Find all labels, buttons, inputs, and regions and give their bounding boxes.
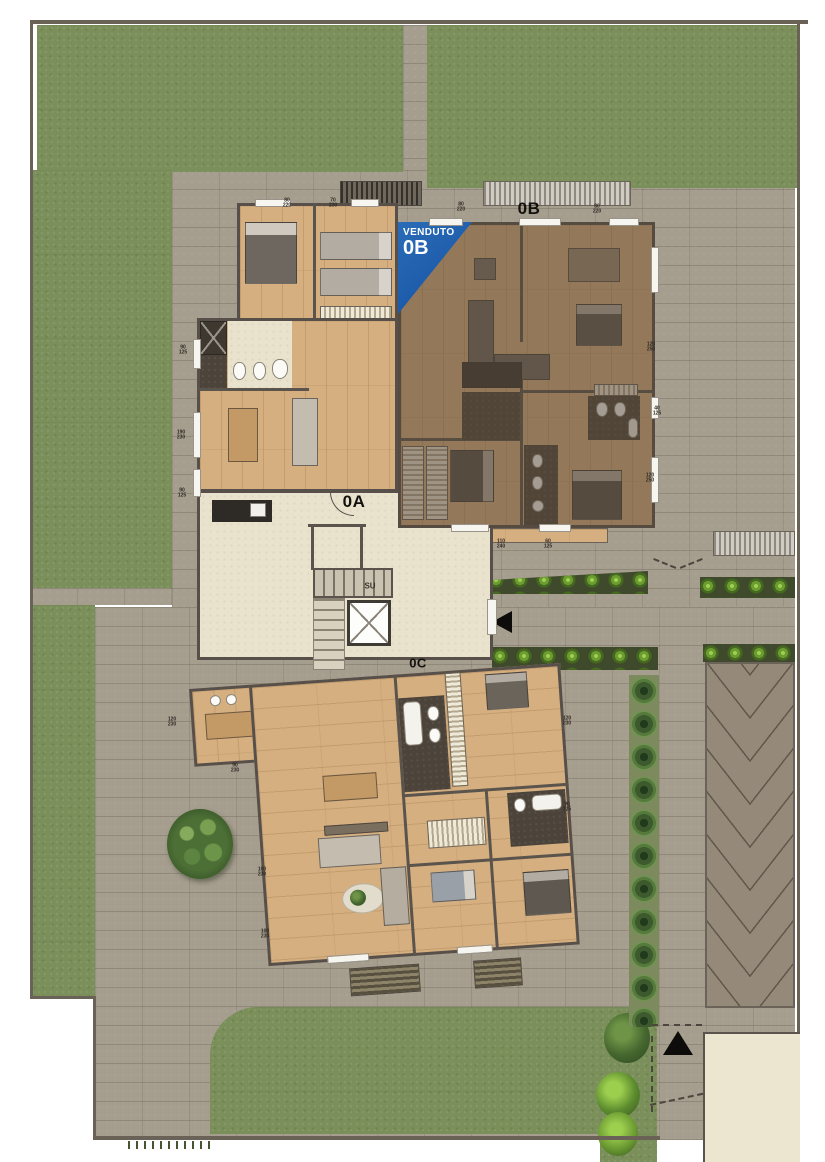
lobby-entry-door [488, 600, 496, 634]
boundary-dash-horizontal [652, 1024, 702, 1026]
boundary-wall-jog [30, 996, 95, 999]
dimension-label: 40125 [653, 406, 661, 415]
dimension-label: 100230 [261, 929, 269, 938]
dining-table [228, 408, 258, 462]
bathtub-icon [531, 793, 562, 811]
window [540, 525, 570, 531]
window [352, 200, 378, 206]
doormat-0c-right [473, 957, 523, 988]
lobby-wall-1 [308, 524, 366, 527]
dimension-label: 90125 [178, 488, 186, 497]
boundary-dash-vertical [651, 1036, 653, 1112]
staircase-side-flight [313, 598, 345, 670]
grass-strip-left-lower [30, 605, 95, 998]
unit-0b: VENDUTO 0B [398, 222, 655, 528]
dimension-label: 100230 [258, 867, 266, 876]
driveway-chevron-left [707, 664, 750, 1006]
driveway-chevron-right [750, 664, 793, 1006]
window [452, 525, 488, 531]
driveway [705, 662, 795, 1008]
lobby-wall-3 [360, 524, 363, 574]
grass-area-top-right [427, 25, 800, 188]
grass-area-top-left [37, 25, 403, 172]
dimension-label: 90125 [563, 802, 571, 811]
sofa [318, 834, 382, 868]
dimension-label: 190230 [177, 430, 185, 439]
boundary-wall-right [797, 20, 800, 1032]
single-bed [320, 268, 392, 296]
sink-icon [272, 359, 288, 379]
window [520, 219, 560, 225]
single-bed [320, 232, 392, 260]
fence-ticks [128, 1141, 212, 1149]
paving-path-top [403, 25, 427, 170]
shrub-icon [598, 1112, 638, 1156]
double-bed [485, 671, 529, 710]
window [194, 413, 200, 457]
dimension-label: 120250 [646, 473, 654, 482]
kitchen-sink [250, 503, 266, 517]
dimension-label: 80220 [457, 202, 465, 211]
unit-label-0B: 0B [518, 199, 541, 219]
boundary-wall-left-lower [93, 996, 96, 1140]
bidet-icon [253, 362, 266, 380]
dimension-label: 120250 [647, 342, 655, 351]
doormat-0c-left [349, 964, 421, 997]
sofa [380, 866, 410, 926]
unit-0a-bath-wall [197, 388, 309, 391]
grass-band-bottom [210, 1007, 657, 1134]
toilet-icon [233, 362, 246, 380]
sofa [292, 398, 318, 466]
gate-leaf-right [680, 558, 703, 569]
stairs-direction-label: SU [364, 582, 375, 591]
window [430, 219, 462, 225]
unit-0c [189, 663, 580, 970]
gate-swing [654, 554, 702, 578]
double-bed [523, 869, 572, 916]
bathtub-icon [402, 701, 423, 746]
grass-strip-left-upper [33, 170, 172, 588]
pergola-grate [713, 531, 795, 556]
window [652, 248, 658, 292]
neighbor-slab [703, 1032, 800, 1162]
unit-label-0A: 0A [343, 492, 366, 512]
entry-grate-right [483, 181, 631, 206]
boundary-wall-left [30, 20, 33, 998]
staircase-upper-flight [313, 568, 393, 598]
dimension-label: 90125 [179, 345, 187, 354]
double-bed [245, 222, 297, 284]
boundary-wall-bottom [93, 1136, 660, 1140]
site-plan: SU [0, 0, 825, 1162]
single-bed [430, 870, 476, 903]
lobby-wall-2 [311, 524, 314, 570]
hedge-row [629, 675, 659, 1027]
dimension-label: 60125 [544, 539, 552, 548]
sold-overlay [398, 222, 655, 528]
dining-table [322, 772, 378, 802]
planting-strip-driveway [703, 644, 795, 662]
dimension-label: 90230 [231, 763, 239, 772]
dimension-label: 80220 [283, 198, 291, 207]
planting-strip-upper-right [700, 577, 795, 598]
dimension-label: 110240 [497, 539, 505, 548]
dimension-label: 70230 [329, 198, 337, 207]
shower-stall [200, 321, 227, 355]
dimension-label: 120230 [168, 717, 176, 726]
wardrobe [427, 817, 487, 849]
window [194, 340, 200, 368]
elevator [347, 600, 391, 646]
unit-label-0C: 0C [409, 656, 427, 671]
window [194, 470, 200, 496]
dimension-label: 80220 [593, 204, 601, 213]
window [610, 219, 638, 225]
unit-0a-bedroom-partition [313, 203, 316, 330]
dimension-label: 120230 [563, 716, 571, 725]
bath-floor-strip [200, 355, 227, 388]
paving-path-left [30, 588, 172, 605]
boundary-wall-top [30, 20, 808, 24]
gate-leaf-left [653, 558, 676, 569]
